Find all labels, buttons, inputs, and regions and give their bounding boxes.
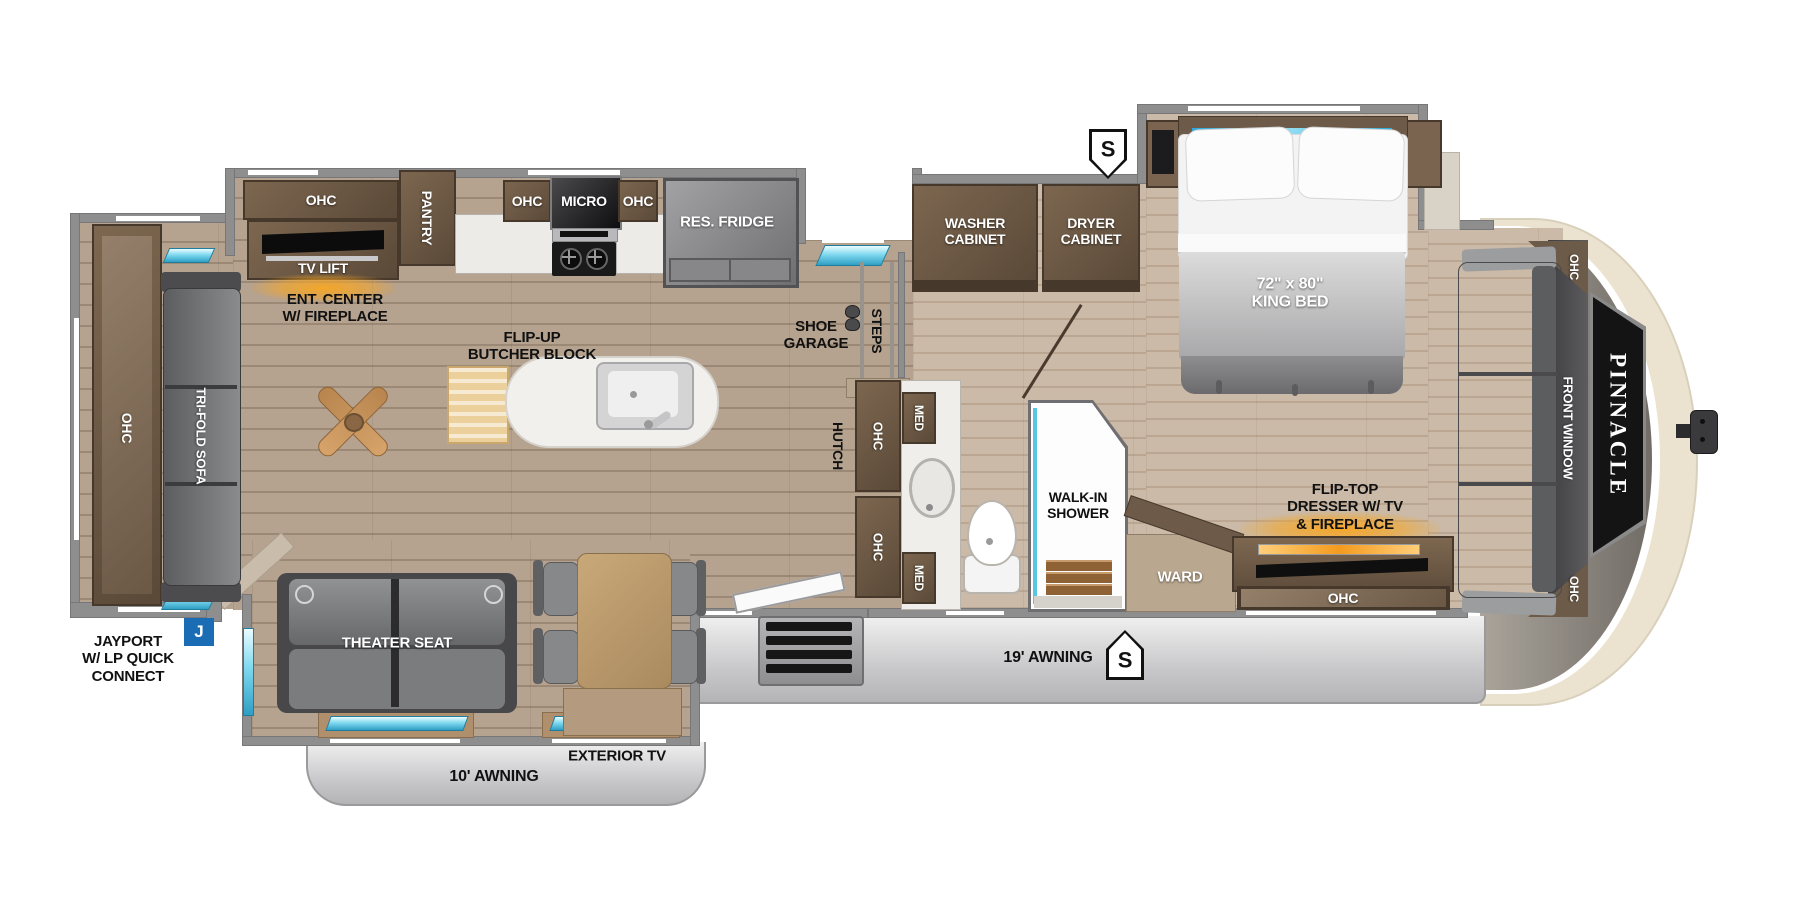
entcenter-ohc-label: OHC: [306, 192, 337, 208]
steps-rail: [890, 262, 894, 382]
kitchen-counter: [616, 214, 665, 274]
shower-bench: [1046, 560, 1112, 571]
door-threshold: [822, 237, 884, 243]
dinette-chair: [543, 562, 579, 616]
cupholder-icon: [484, 585, 503, 604]
nightstand-tv: [1152, 130, 1174, 174]
step-tread: [766, 636, 852, 645]
toilet-flush-dot: [986, 538, 993, 545]
med-lower-label: MED: [913, 565, 925, 591]
entry-door-step: [815, 245, 890, 266]
burner-cross: [588, 256, 602, 258]
sofa-cushion-line: [1458, 482, 1558, 486]
window-slit: [946, 611, 1004, 615]
island-caption: FLIP-UP BUTCHER BLOCK: [468, 329, 596, 364]
window-slit: [330, 739, 460, 743]
butcher-block: [447, 366, 509, 444]
kitchen-ohc-right-label: OHC: [623, 193, 654, 209]
sink-drain: [630, 391, 637, 398]
dryer-label: DRYER CABINET: [1061, 215, 1122, 247]
shower-tile: [1034, 596, 1122, 608]
awning-10-label: 10' AWNING: [449, 768, 538, 786]
hutch-ohc-lower-label: OHC: [872, 533, 885, 561]
dresser-caption: FLIP-TOP DRESSER W/ TV & FIREPLACE: [1287, 481, 1403, 533]
window: [325, 716, 468, 731]
range-vent-slot: [560, 231, 608, 237]
entcenter-caption: ENT. CENTER W/ FIREPLACE: [282, 291, 387, 326]
dinette-chair-back: [533, 628, 543, 684]
burner-icon: [586, 248, 608, 270]
kitchen-ohc-left-label: OHC: [512, 193, 543, 209]
shoes-icon: [845, 305, 860, 318]
hutch-ohc-upper-label: OHC: [872, 422, 885, 450]
window: [243, 628, 254, 716]
fridge-door: [669, 258, 731, 282]
island-sink-basin: [608, 371, 678, 417]
window-slit: [74, 318, 79, 540]
window-slit: [1246, 611, 1436, 615]
shower-glass: [1033, 408, 1037, 604]
microwave-label: MICRO: [561, 193, 607, 209]
wall: [225, 168, 235, 256]
awning-19-label: 19' AWNING: [1003, 649, 1092, 667]
step-tread: [766, 622, 852, 631]
toilet-bowl: [967, 500, 1017, 566]
shower-bench: [1046, 584, 1112, 595]
step-tread: [766, 664, 852, 673]
rear-ohc-label: OHC: [120, 413, 134, 444]
burner-icon: [560, 248, 582, 270]
jayport-caption: JAYPORT W/ LP QUICK CONNECT: [82, 633, 174, 685]
dinette-chair: [543, 630, 579, 684]
nightstand: [1404, 120, 1442, 188]
vanity-faucet: [926, 504, 933, 511]
dresser-ohc-label: OHC: [1328, 590, 1359, 606]
ceiling-fan-hub: [344, 413, 364, 432]
dinette-bench: [563, 688, 682, 736]
cupholder-icon: [295, 585, 314, 604]
burner-cross: [562, 256, 576, 258]
dinette-table: [577, 553, 672, 689]
window-slit: [116, 216, 200, 221]
speaker-bottom-label: S: [1118, 647, 1132, 672]
steps-label: STEPS: [870, 309, 884, 354]
bed-foot-notch: [1368, 380, 1374, 394]
front-ohc-bottom-label: OHC: [1568, 576, 1580, 602]
hutch-label: HUTCH: [831, 422, 845, 470]
pantry-label: PANTRY: [420, 191, 434, 246]
wall: [898, 252, 905, 378]
bed-foot-notch: [1292, 384, 1298, 396]
fridge-door: [729, 258, 791, 282]
window-slit: [552, 739, 666, 743]
exterior-tv-label: EXTERIOR TV: [568, 747, 666, 764]
trifold-sofa-label: TRI-FOLD SOFA: [195, 387, 208, 484]
window-slit: [1188, 106, 1360, 111]
steps-rail: [860, 262, 864, 382]
shower-label: WALK-IN SHOWER: [1047, 489, 1109, 521]
dresser-fireplace: [1258, 544, 1420, 555]
pillow: [1297, 126, 1405, 202]
faucet-base: [644, 420, 653, 429]
step-tread: [766, 650, 852, 659]
speaker-top-label: S: [1101, 136, 1115, 161]
hitch-pin-dot: [1700, 419, 1705, 424]
med-upper-label: MED: [913, 405, 925, 431]
window-slit: [248, 170, 318, 175]
front-sofa-back: [1532, 266, 1556, 592]
theater-seat-label: THEATER SEAT: [342, 634, 452, 651]
brand-logo: PINNACLE: [1607, 353, 1630, 497]
wardrobe-label: WARD: [1157, 568, 1202, 585]
bed-sheet-fold: [1178, 234, 1406, 254]
hitch-pin-head: [1690, 410, 1718, 454]
window: [163, 248, 216, 263]
shoes-icon: [845, 318, 860, 331]
shoe-garage-caption: SHOE GARAGE: [784, 318, 849, 353]
sofa-cushion-line: [1458, 372, 1558, 376]
rv-floorplan: PINNACLE: [0, 0, 1800, 920]
front-window-label: FRONT WINDOW: [1562, 376, 1575, 479]
window-slit: [528, 170, 620, 175]
front-ohc-top-label: OHC: [1568, 254, 1580, 280]
king-bed-label: 72" x 80" KING BED: [1252, 276, 1329, 313]
entry-alcove: [806, 160, 912, 240]
kitchen-counter: [455, 214, 554, 274]
shower-bench: [1046, 572, 1112, 583]
bed-foot-notch: [1216, 380, 1222, 394]
pillow: [1185, 126, 1295, 202]
jayport-badge-label: J: [194, 622, 203, 642]
washer-label: WASHER CABINET: [945, 215, 1006, 247]
hitch-pin-dot: [1700, 437, 1705, 442]
fridge-label: RES. FRIDGE: [680, 213, 774, 230]
dinette-chair-back: [533, 560, 543, 616]
